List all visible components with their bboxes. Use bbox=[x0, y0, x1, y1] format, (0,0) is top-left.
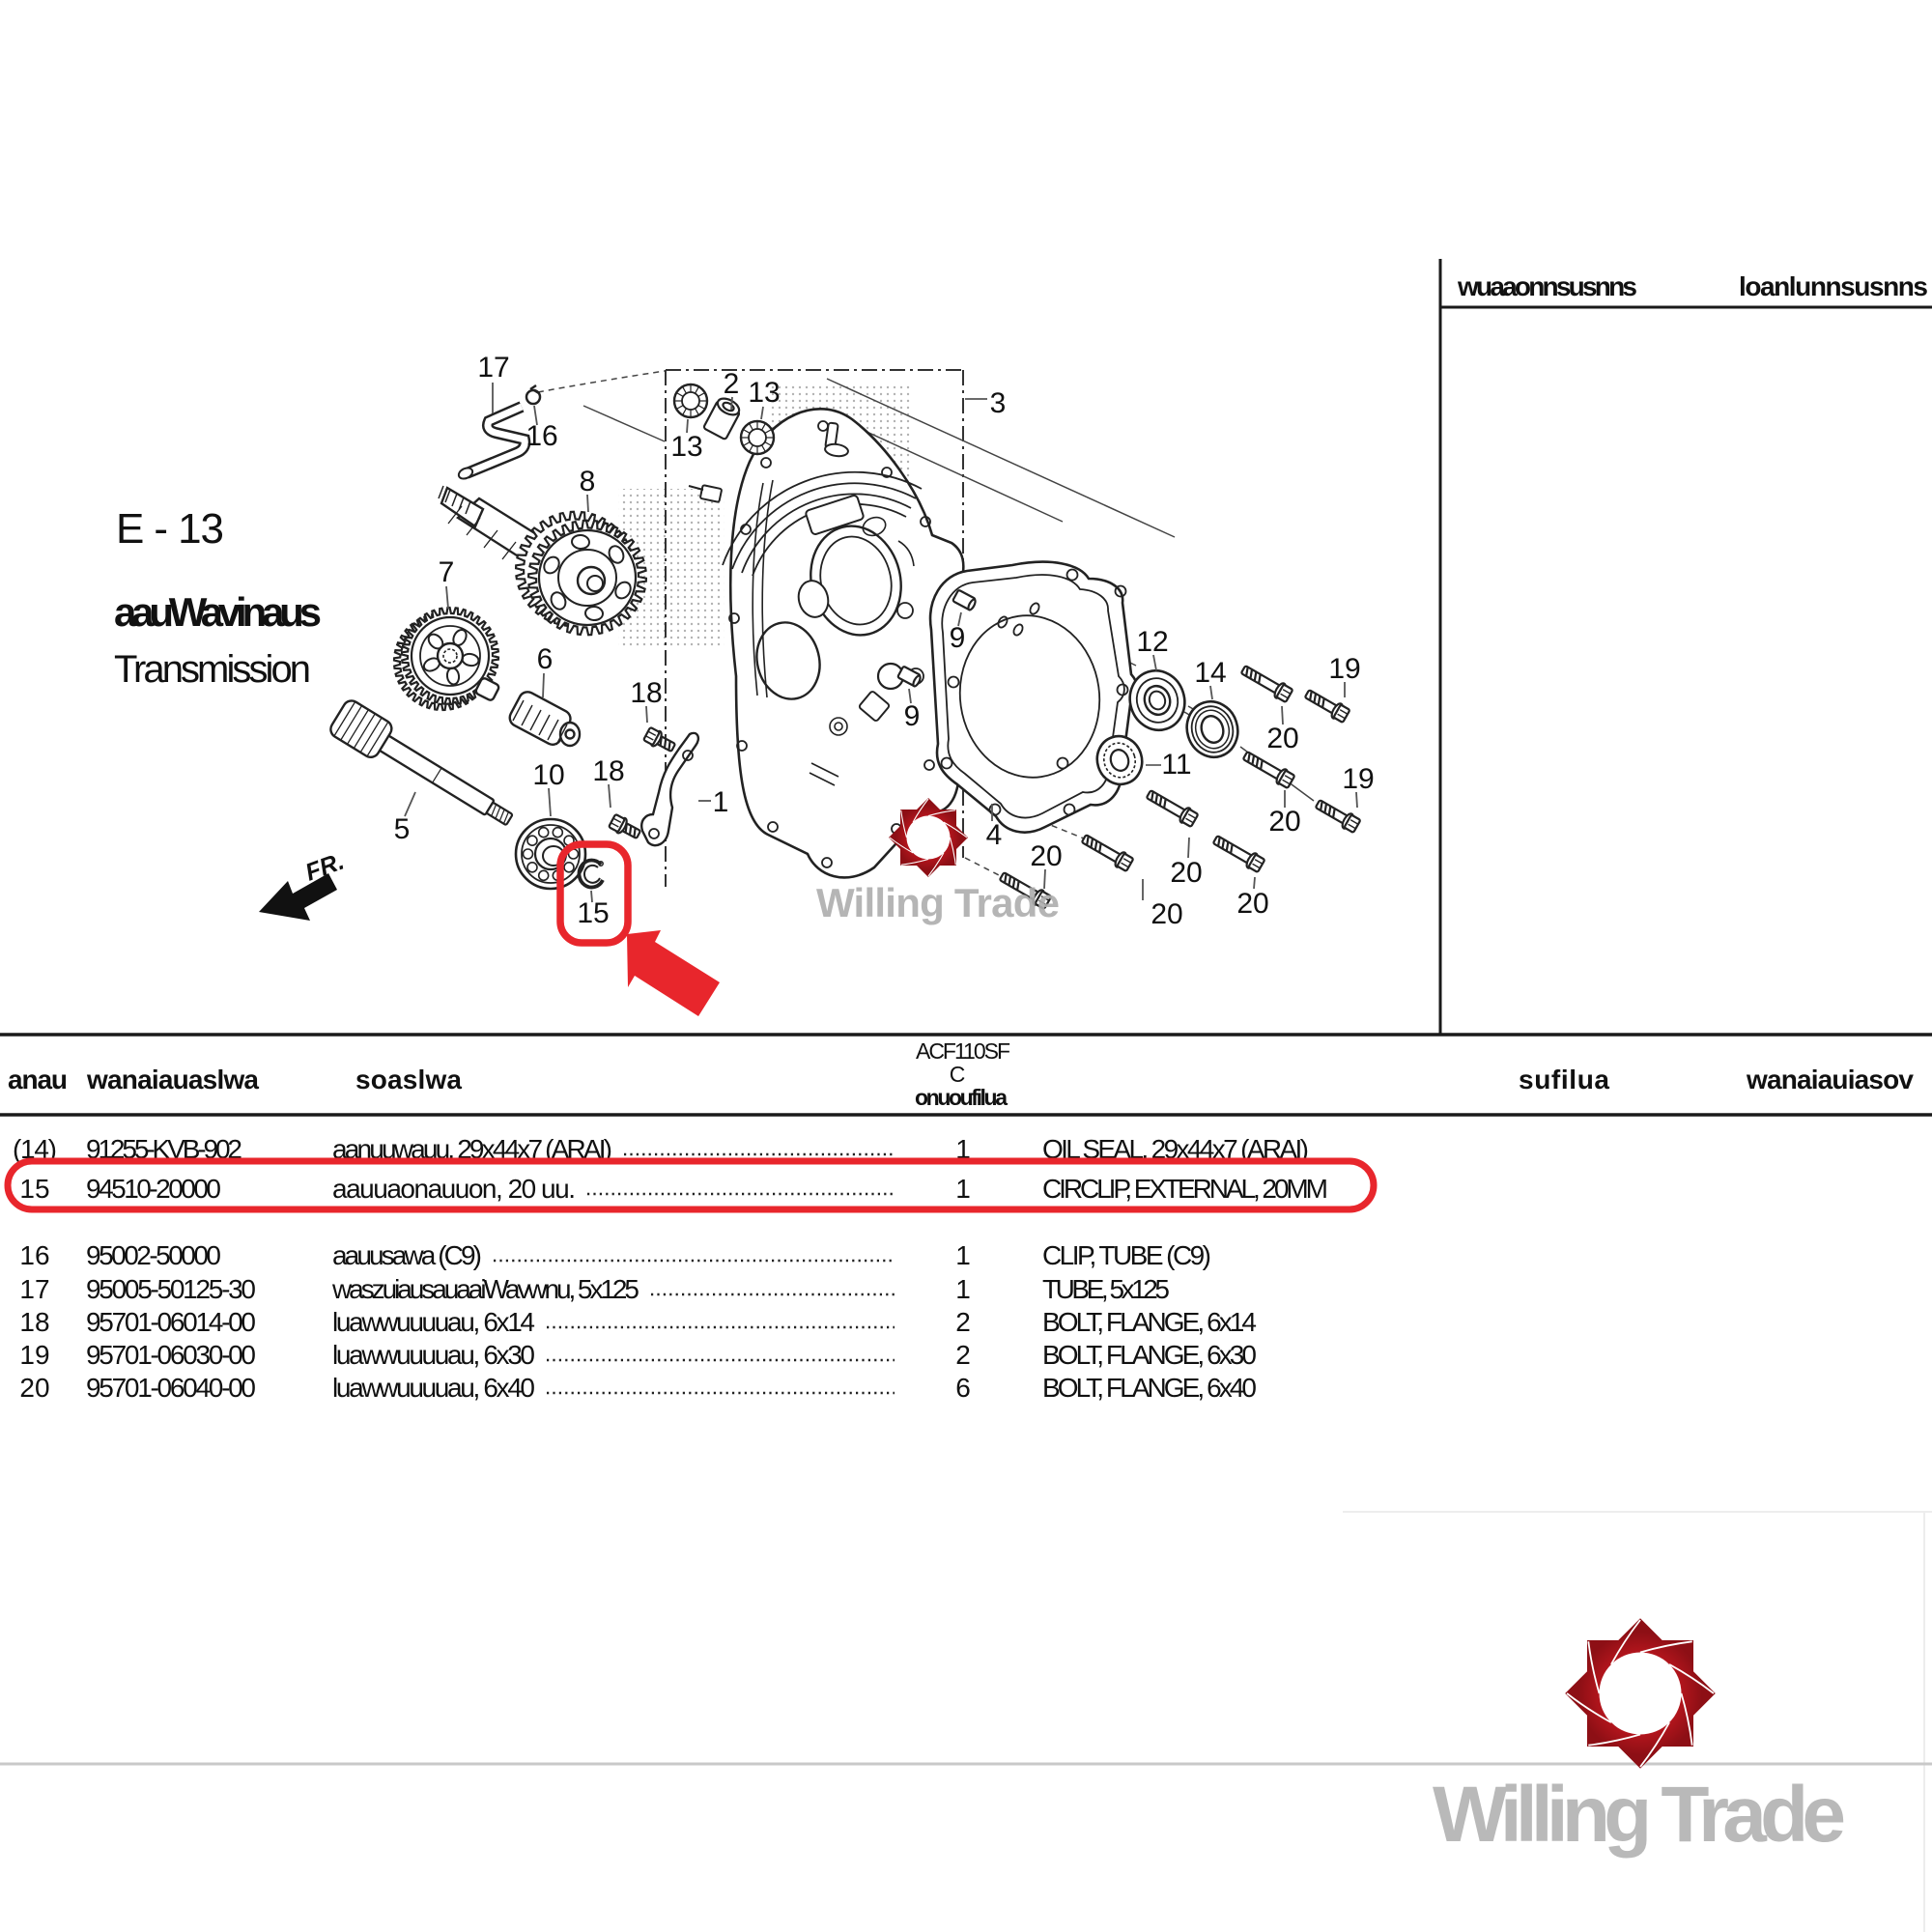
svg-text:Willing Trade: Willing Trade bbox=[1433, 1771, 1846, 1859]
svg-text:16: 16 bbox=[526, 420, 557, 452]
svg-text:13: 13 bbox=[670, 431, 702, 463]
svg-text:E - 13: E - 13 bbox=[116, 505, 224, 553]
svg-text:5: 5 bbox=[394, 813, 411, 845]
svg-text:18: 18 bbox=[592, 755, 624, 787]
svg-text:9: 9 bbox=[904, 700, 921, 732]
svg-text:94510-20000: 94510-20000 bbox=[86, 1174, 221, 1204]
svg-text:19: 19 bbox=[1328, 653, 1360, 685]
svg-text:20: 20 bbox=[1170, 857, 1202, 889]
svg-text:wuaaonnsusnns: wuaaonnsusnns bbox=[1457, 271, 1637, 301]
svg-text:1: 1 bbox=[955, 1240, 971, 1270]
svg-text:waszuiausauaaiWavwnu, 5x125: waszuiausauaaiWavwnu, 5x125 bbox=[331, 1274, 639, 1304]
svg-text:4: 4 bbox=[986, 819, 1003, 851]
svg-text:2: 2 bbox=[955, 1340, 971, 1370]
svg-text:95005-50125-30: 95005-50125-30 bbox=[86, 1274, 256, 1304]
svg-text:20: 20 bbox=[19, 1373, 49, 1403]
svg-text:6: 6 bbox=[537, 643, 554, 675]
svg-text:9: 9 bbox=[950, 622, 966, 654]
svg-text:17: 17 bbox=[477, 352, 509, 384]
svg-text:7: 7 bbox=[439, 556, 455, 588]
svg-text:wanaiauiasov: wanaiauiasov bbox=[1746, 1065, 1914, 1094]
svg-text:wanaiauaslwa: wanaiauaslwa bbox=[86, 1065, 259, 1094]
svg-text:20: 20 bbox=[1236, 888, 1268, 920]
svg-text:6: 6 bbox=[955, 1373, 971, 1403]
svg-text:20: 20 bbox=[1030, 840, 1062, 872]
svg-text:95002-50000: 95002-50000 bbox=[86, 1240, 221, 1270]
svg-text:19: 19 bbox=[19, 1340, 49, 1370]
svg-text:19: 19 bbox=[1342, 763, 1374, 795]
svg-text:1: 1 bbox=[713, 786, 729, 818]
svg-text:aauusawa (C9): aauusawa (C9) bbox=[332, 1240, 482, 1270]
svg-text:luawwuuuuau, 6x14: luawwuuuuau, 6x14 bbox=[332, 1307, 535, 1337]
svg-text:95701-06030-00: 95701-06030-00 bbox=[86, 1340, 256, 1370]
svg-text:18: 18 bbox=[630, 677, 662, 709]
svg-text:95701-06040-00: 95701-06040-00 bbox=[86, 1373, 256, 1403]
svg-text:soaslwa: soaslwa bbox=[355, 1065, 462, 1094]
svg-text:1: 1 bbox=[955, 1174, 971, 1204]
svg-text:C: C bbox=[950, 1062, 966, 1087]
svg-text:CLIP, TUBE (C9): CLIP, TUBE (C9) bbox=[1042, 1240, 1211, 1270]
svg-text:20: 20 bbox=[1268, 806, 1300, 838]
svg-text:Willing Trade: Willing Trade bbox=[816, 880, 1060, 925]
svg-text:BOLT, FLANGE, 6x14: BOLT, FLANGE, 6x14 bbox=[1042, 1307, 1257, 1337]
svg-text:3: 3 bbox=[990, 387, 1007, 419]
svg-text:luawwuuuuau, 6x30: luawwuuuuau, 6x30 bbox=[332, 1340, 535, 1370]
svg-text:16: 16 bbox=[19, 1240, 49, 1270]
svg-text:14: 14 bbox=[1194, 657, 1226, 689]
svg-text:aauWavinaus: aauWavinaus bbox=[114, 589, 323, 635]
svg-text:10: 10 bbox=[532, 759, 564, 791]
svg-text:20: 20 bbox=[1151, 898, 1182, 930]
svg-text:sufilua: sufilua bbox=[1519, 1065, 1609, 1094]
svg-text:2: 2 bbox=[955, 1307, 971, 1337]
svg-text:BOLT, FLANGE, 6x40: BOLT, FLANGE, 6x40 bbox=[1042, 1373, 1257, 1403]
svg-text:anau: anau bbox=[8, 1065, 68, 1094]
svg-text:18: 18 bbox=[19, 1307, 49, 1337]
svg-text:17: 17 bbox=[19, 1274, 49, 1304]
svg-text:20: 20 bbox=[1266, 723, 1298, 754]
svg-text:2: 2 bbox=[724, 368, 740, 400]
svg-text:loanlunnsusnns: loanlunnsusnns bbox=[1739, 271, 1928, 301]
svg-text:13: 13 bbox=[748, 377, 780, 409]
svg-text:onuoufilua: onuoufilua bbox=[915, 1085, 1008, 1110]
svg-text:15: 15 bbox=[19, 1174, 49, 1204]
svg-text:luawwuuuuau, 6x40: luawwuuuuau, 6x40 bbox=[332, 1373, 535, 1403]
svg-text:CIRCLIP, EXTERNAL, 20MM: CIRCLIP, EXTERNAL, 20MM bbox=[1042, 1174, 1328, 1204]
svg-text:15: 15 bbox=[577, 897, 609, 929]
svg-text:8: 8 bbox=[580, 466, 596, 497]
svg-text:TUBE, 5x125: TUBE, 5x125 bbox=[1042, 1274, 1170, 1304]
svg-text:95701-06014-00: 95701-06014-00 bbox=[86, 1307, 256, 1337]
svg-text:Transmission: Transmission bbox=[114, 648, 311, 691]
svg-text:ACF110SF: ACF110SF bbox=[916, 1038, 1010, 1064]
svg-text:aauuaonauuon, 20 uu.: aauuaonauuon, 20 uu. bbox=[332, 1174, 576, 1204]
svg-text:12: 12 bbox=[1136, 626, 1168, 658]
svg-text:1: 1 bbox=[955, 1274, 971, 1304]
svg-text:11: 11 bbox=[1161, 749, 1191, 781]
svg-text:BOLT, FLANGE, 6x30: BOLT, FLANGE, 6x30 bbox=[1042, 1340, 1257, 1370]
